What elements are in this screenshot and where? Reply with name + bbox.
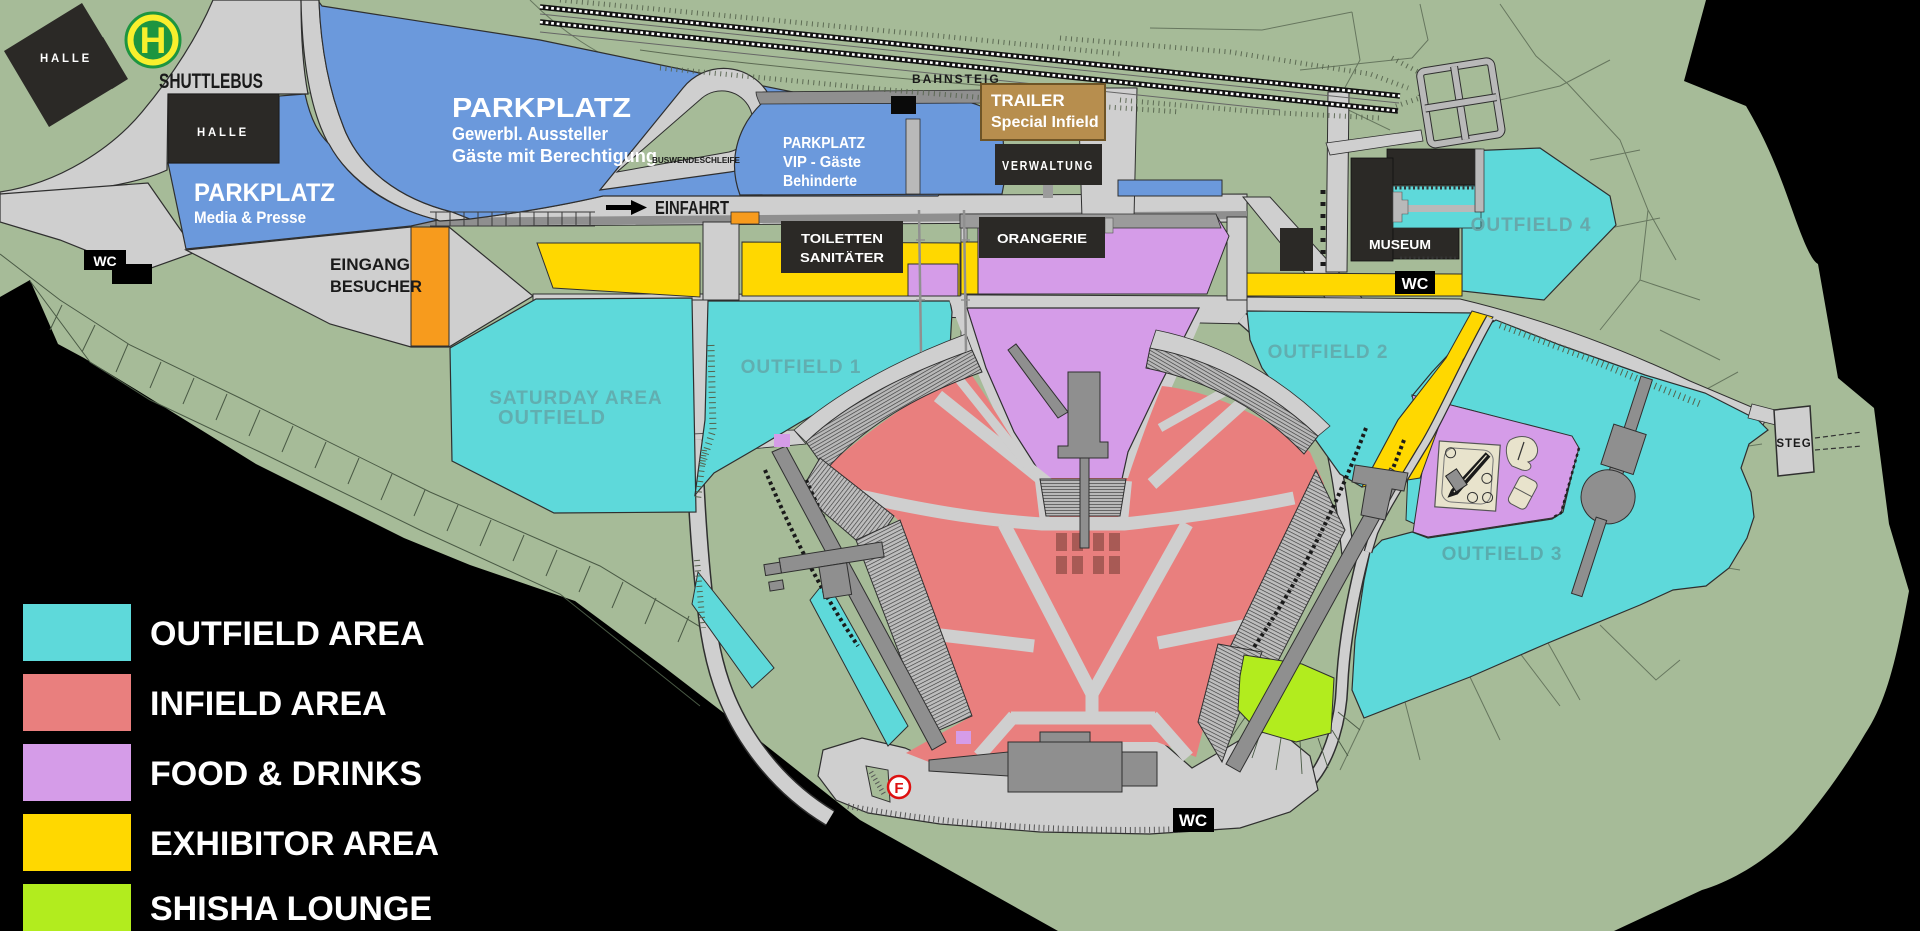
svg-text:SHUTTLEBUS: SHUTTLEBUS — [159, 70, 263, 93]
svg-text:WC: WC — [1402, 276, 1429, 293]
svg-text:BAHNSTEIG: BAHNSTEIG — [912, 72, 1001, 86]
svg-text:Gewerbl. Aussteller: Gewerbl. Aussteller — [452, 124, 608, 144]
svg-text:HALLE: HALLE — [40, 51, 92, 65]
svg-text:Gäste mit Berechtigung: Gäste mit Berechtigung — [452, 146, 657, 166]
svg-text:OUTFIELD 1: OUTFIELD 1 — [741, 357, 862, 378]
svg-text:EXHIBITOR AREA: EXHIBITOR AREA — [150, 825, 439, 863]
svg-text:TOILETTEN: TOILETTEN — [801, 232, 883, 246]
svg-text:OUTFIELD AREA: OUTFIELD AREA — [150, 615, 425, 653]
svg-text:VERWALTUNG: VERWALTUNG — [1002, 159, 1094, 173]
svg-text:FOOD & DRINKS: FOOD & DRINKS — [150, 755, 422, 793]
svg-text:BESUCHER: BESUCHER — [330, 277, 422, 296]
svg-text:SANITÄTER: SANITÄTER — [800, 250, 884, 265]
svg-text:PARKPLATZ: PARKPLATZ — [194, 179, 335, 207]
svg-text:PARKPLATZ: PARKPLATZ — [452, 92, 631, 123]
svg-text:TRAILER: TRAILER — [991, 91, 1065, 110]
svg-text:PARKPLATZ: PARKPLATZ — [783, 135, 865, 152]
svg-text:OUTFIELD: OUTFIELD — [498, 407, 606, 429]
svg-text:SHISHA LOUNGE: SHISHA LOUNGE — [150, 890, 432, 928]
svg-text:WC: WC — [93, 253, 116, 269]
svg-text:Behinderte: Behinderte — [783, 173, 857, 190]
svg-text:OUTFIELD 2: OUTFIELD 2 — [1268, 342, 1389, 363]
svg-text:VIP - Gäste: VIP - Gäste — [783, 154, 861, 171]
svg-text:INFIELD AREA: INFIELD AREA — [150, 685, 387, 723]
svg-text:OUTFIELD 4: OUTFIELD 4 — [1471, 215, 1592, 236]
svg-text:Media & Presse: Media & Presse — [194, 208, 306, 227]
svg-text:EINGANG: EINGANG — [330, 255, 410, 274]
svg-text:MUSEUM: MUSEUM — [1369, 238, 1431, 252]
svg-text:WC: WC — [1179, 811, 1207, 830]
svg-text:SATURDAY AREA: SATURDAY AREA — [489, 388, 662, 409]
svg-text:Special Infield: Special Infield — [991, 114, 1099, 131]
svg-text:OUTFIELD 3: OUTFIELD 3 — [1442, 544, 1563, 565]
svg-text:ORANGERIE: ORANGERIE — [997, 231, 1087, 246]
svg-text:STEG: STEG — [1776, 438, 1811, 450]
svg-text:F: F — [894, 780, 903, 797]
svg-text:H: H — [140, 20, 167, 61]
svg-text:BUSWENDESCHLEIFE: BUSWENDESCHLEIFE — [652, 156, 741, 165]
svg-text:HALLE: HALLE — [197, 125, 249, 139]
svg-text:EINFAHRT: EINFAHRT — [655, 198, 729, 218]
